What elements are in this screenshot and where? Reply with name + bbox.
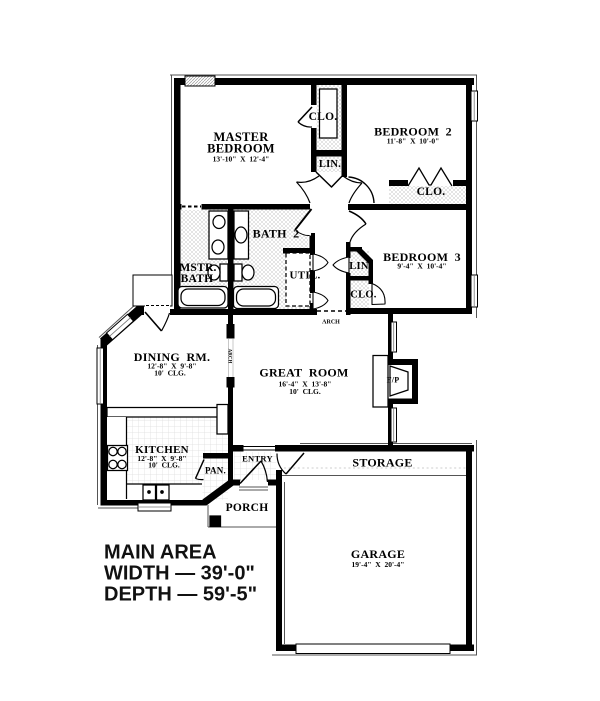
svg-text:F/P: F/P <box>387 376 400 385</box>
svg-text:9'-4" X 10'-4": 9'-4" X 10'-4" <box>397 262 446 271</box>
svg-text:13'-10" X 12'-4": 13'-10" X 12'-4" <box>213 155 270 164</box>
svg-text:GREAT ROOM: GREAT ROOM <box>259 366 348 380</box>
svg-text:10' CLG.: 10' CLG. <box>289 387 321 396</box>
svg-text:CLO.: CLO. <box>417 186 446 198</box>
svg-text:BATH 2: BATH 2 <box>253 227 300 241</box>
svg-text:WIDTH — 39'-0": WIDTH — 39'-0" <box>104 563 255 585</box>
svg-text:PAN.: PAN. <box>205 466 226 476</box>
svg-text:19'-4" X 20'-4": 19'-4" X 20'-4" <box>352 560 405 569</box>
svg-text:ARCH: ARCH <box>227 349 232 364</box>
svg-text:UTIL.: UTIL. <box>290 270 321 282</box>
svg-text:BEDROOM: BEDROOM <box>207 142 275 156</box>
svg-text:10' CLG.: 10' CLG. <box>154 369 186 378</box>
svg-text:DEPTH — 59'-5": DEPTH — 59'-5" <box>104 584 257 606</box>
svg-text:11'-8" X 10'-0": 11'-8" X 10'-0" <box>387 137 440 146</box>
svg-text:CLO.: CLO. <box>350 290 377 301</box>
svg-text:LIN: LIN <box>349 261 369 272</box>
svg-text:ARCH: ARCH <box>322 320 340 326</box>
svg-text:STORAGE: STORAGE <box>352 456 412 470</box>
svg-text:LIN.: LIN. <box>319 159 341 170</box>
svg-text:PORCH: PORCH <box>226 502 269 514</box>
svg-text:10' CLG.: 10' CLG. <box>148 461 180 470</box>
svg-text:MAIN AREA: MAIN AREA <box>104 542 217 564</box>
svg-text:GARAGE: GARAGE <box>351 547 405 561</box>
svg-text:ENTRY: ENTRY <box>242 454 273 464</box>
svg-text:BATH: BATH <box>181 273 214 285</box>
svg-text:CLO.: CLO. <box>309 111 338 123</box>
